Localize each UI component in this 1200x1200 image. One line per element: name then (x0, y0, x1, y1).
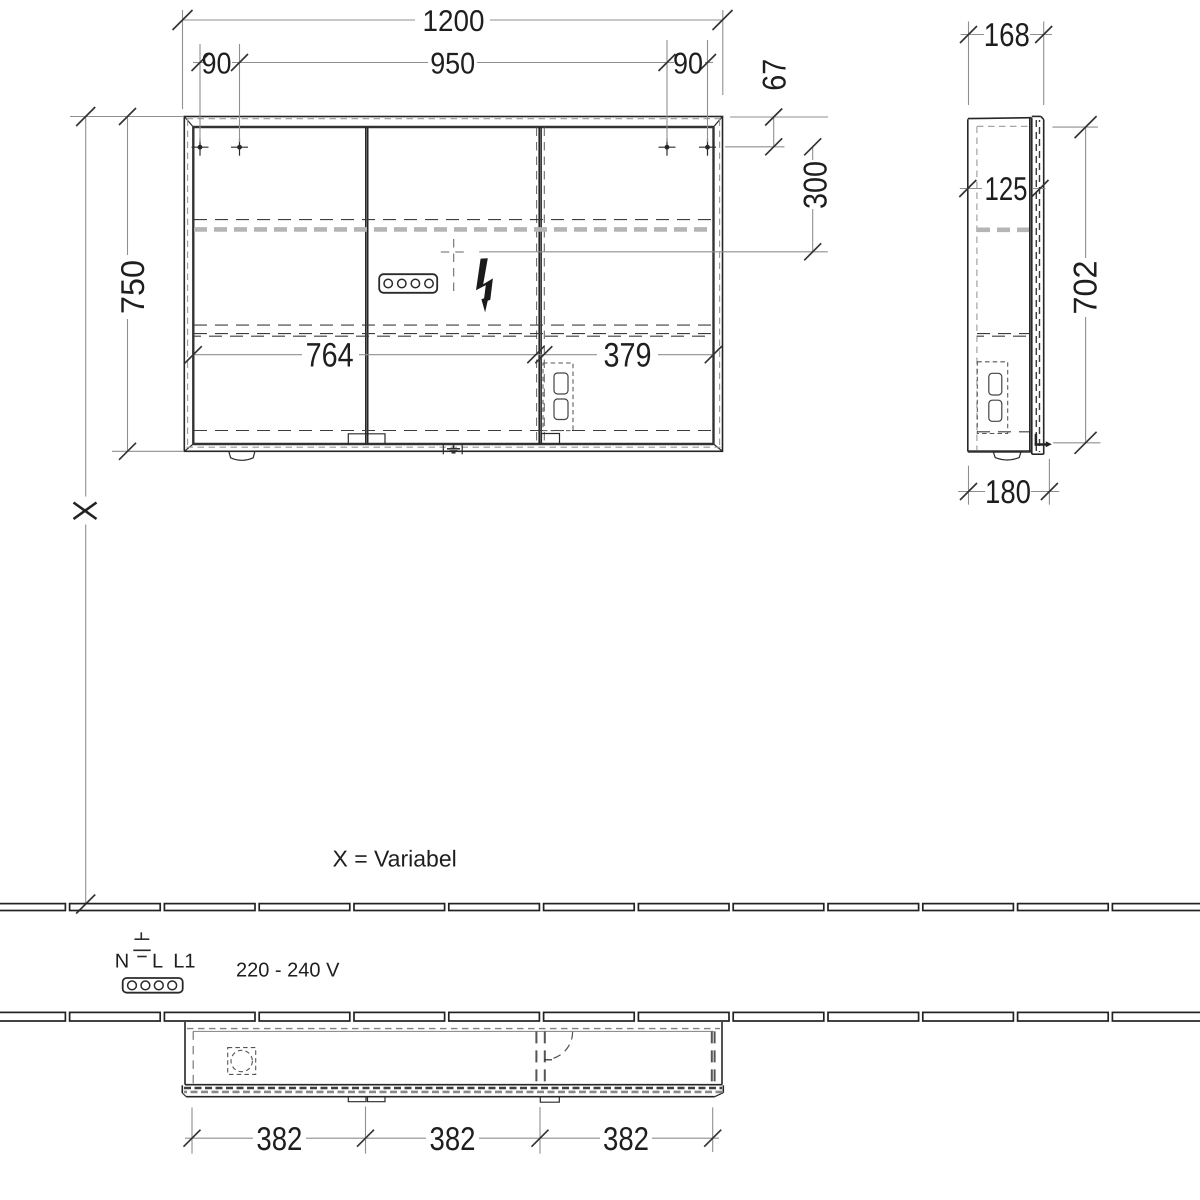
svg-text:L1: L1 (173, 950, 195, 972)
svg-text:382: 382 (603, 1120, 649, 1157)
svg-text:382: 382 (430, 1120, 476, 1157)
svg-text:L: L (152, 950, 163, 972)
svg-text:125: 125 (985, 170, 1028, 207)
svg-text:750: 750 (114, 260, 151, 314)
svg-text:90: 90 (202, 48, 232, 81)
svg-text:950: 950 (430, 48, 475, 81)
svg-text:168: 168 (984, 16, 1030, 53)
svg-text:67: 67 (756, 59, 793, 91)
svg-text:180: 180 (985, 473, 1031, 510)
svg-text:90: 90 (673, 48, 703, 81)
svg-text:220 - 240 V: 220 - 240 V (236, 960, 340, 982)
svg-text:300: 300 (797, 161, 834, 209)
svg-text:1200: 1200 (423, 5, 485, 38)
svg-text:379: 379 (604, 337, 652, 375)
svg-text:382: 382 (256, 1120, 302, 1157)
svg-text:X = Variabel: X = Variabel (333, 845, 457, 871)
svg-text:764: 764 (306, 337, 354, 375)
svg-text:702: 702 (1067, 261, 1104, 315)
svg-text:N: N (115, 950, 129, 972)
